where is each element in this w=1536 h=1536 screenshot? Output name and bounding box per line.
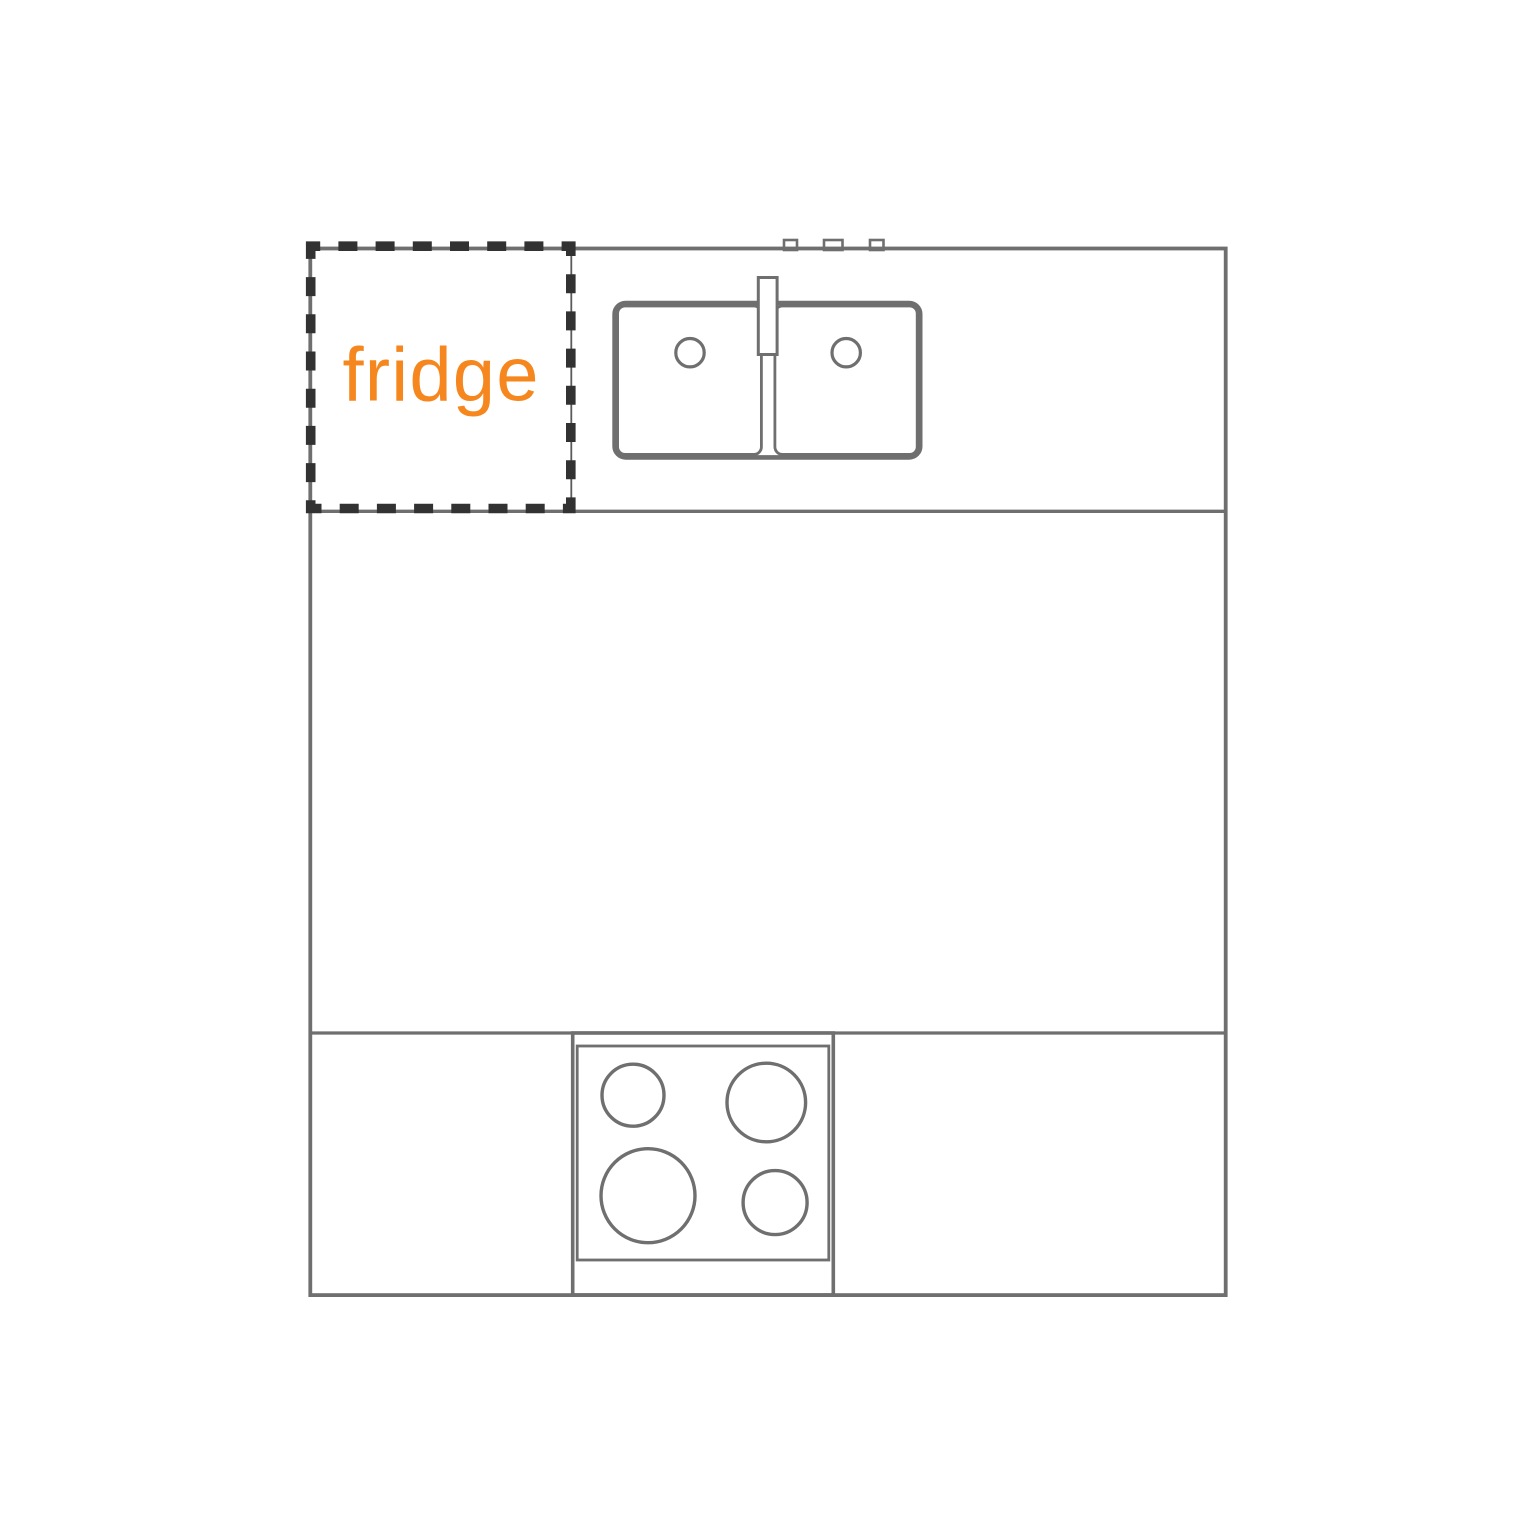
svg-text:fridge: fridge (343, 333, 539, 418)
